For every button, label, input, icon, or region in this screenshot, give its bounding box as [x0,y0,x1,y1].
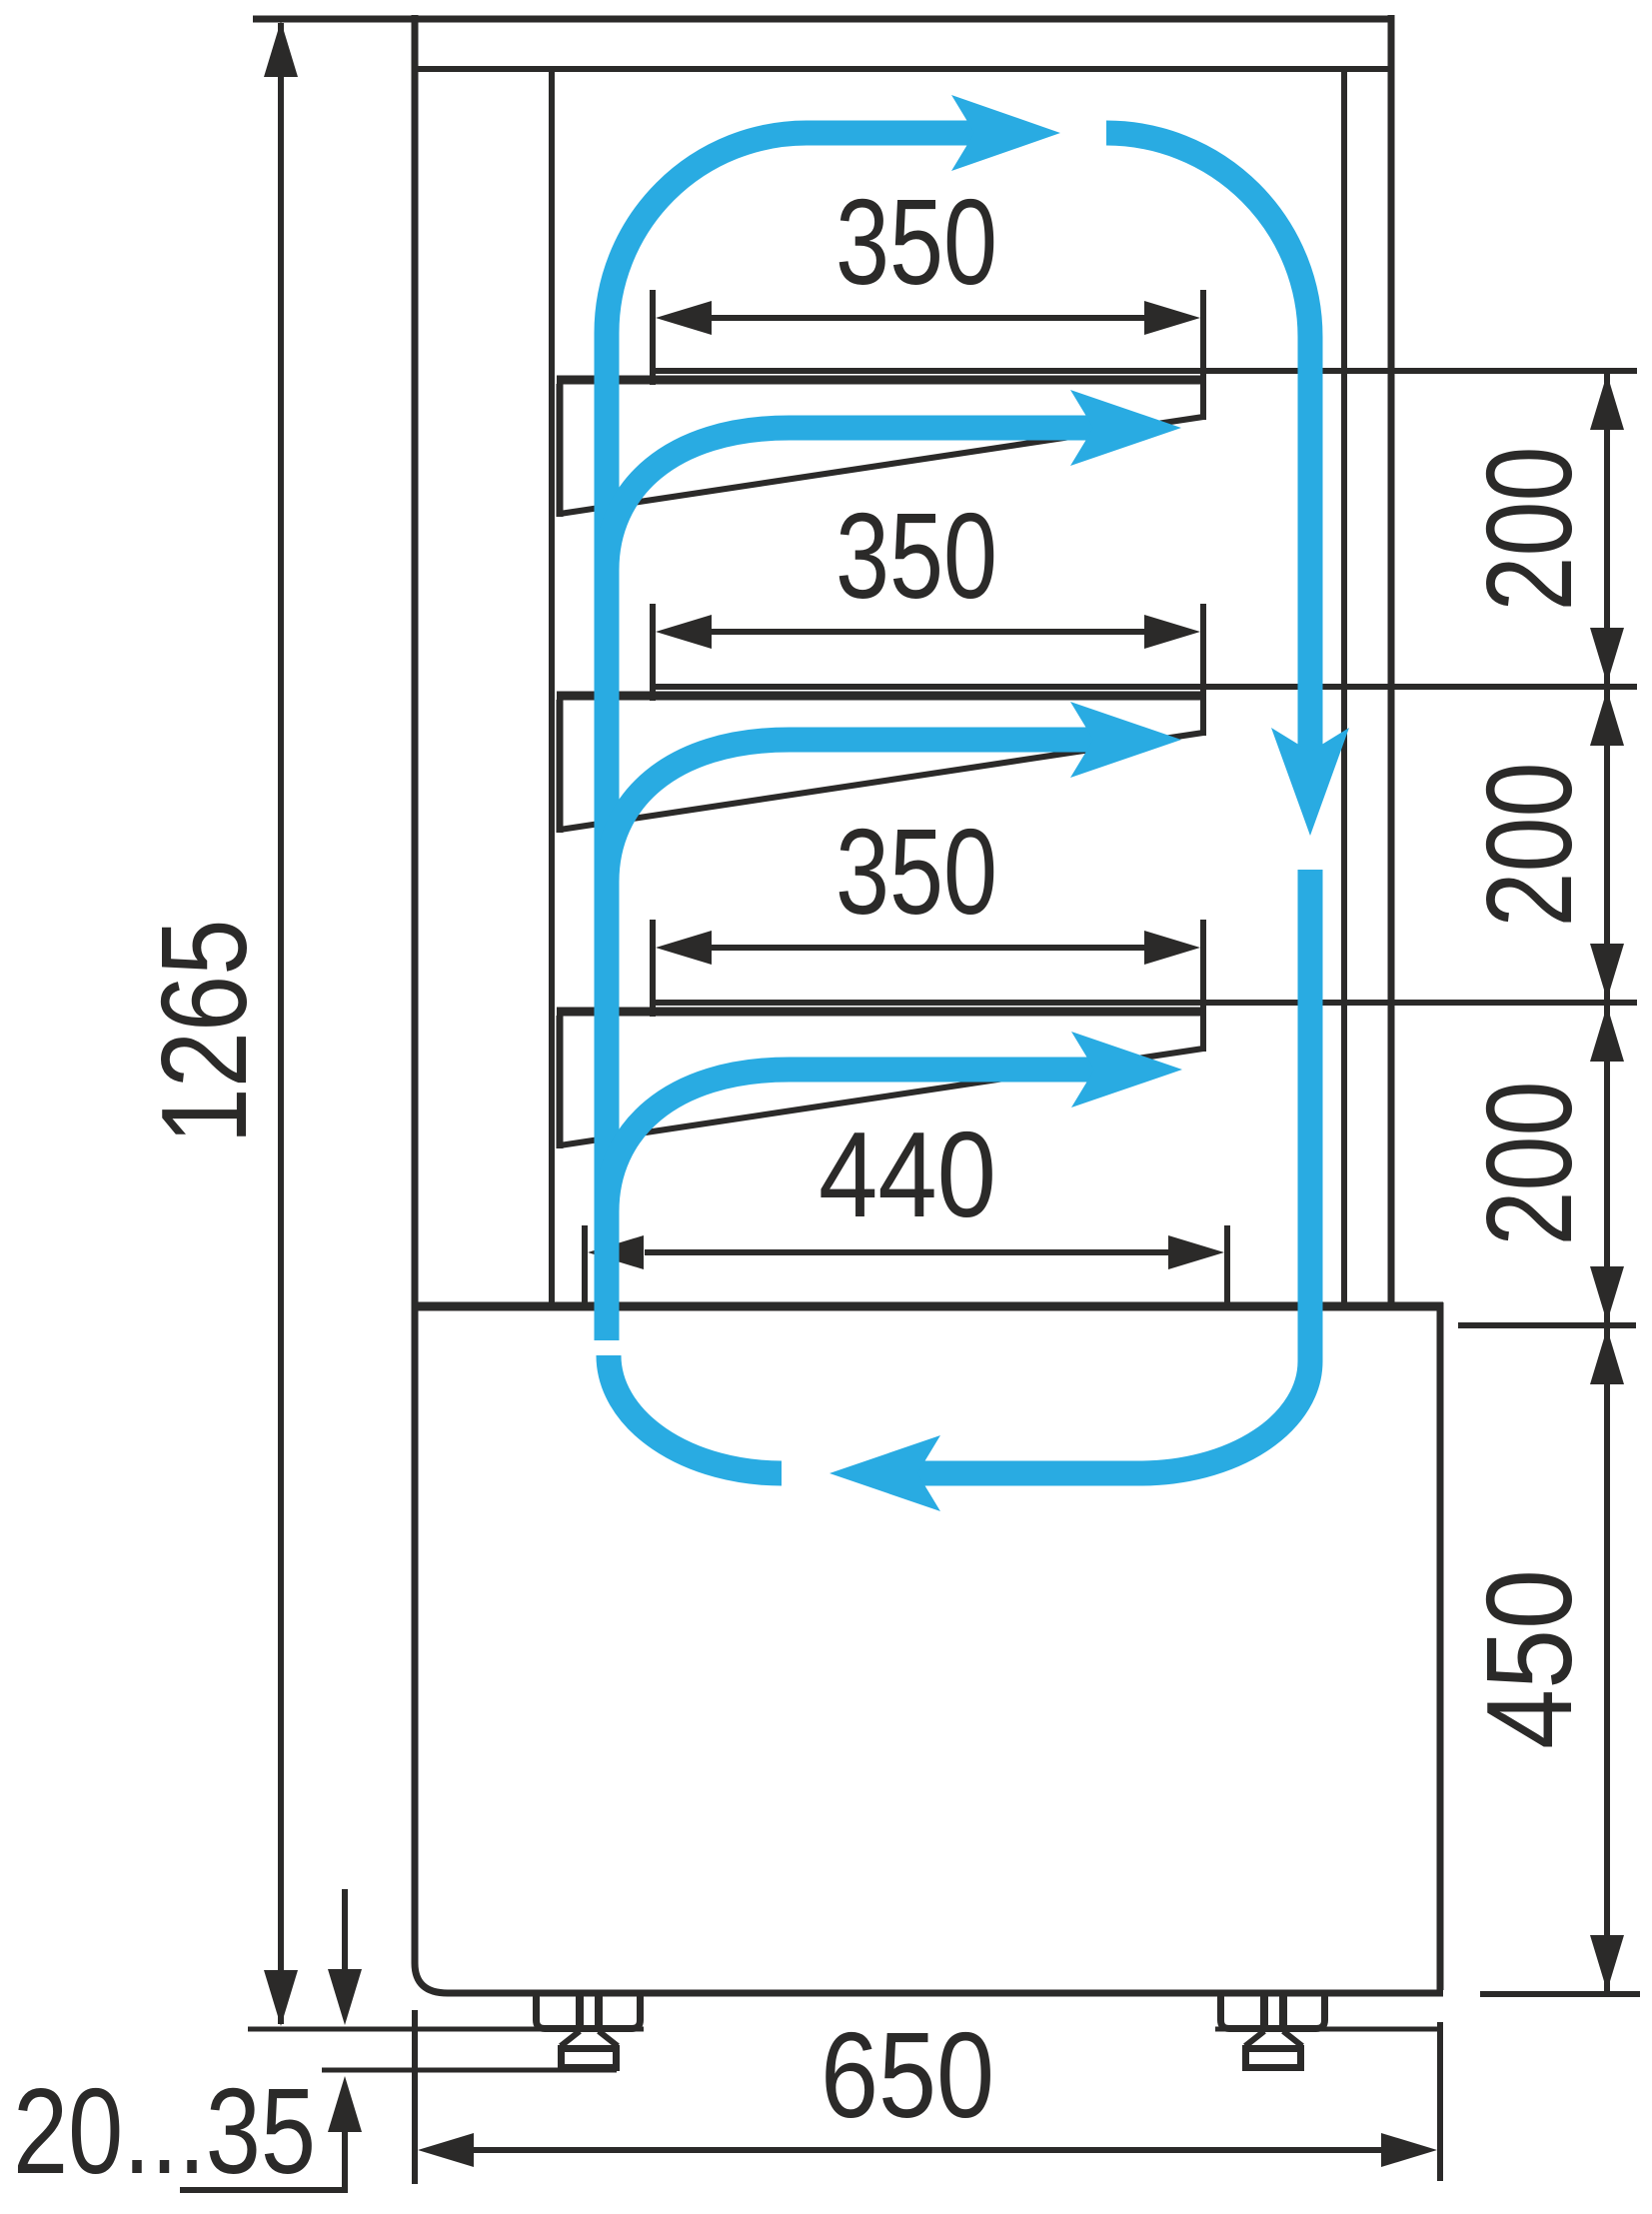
svg-text:450: 450 [1461,1569,1597,1749]
svg-text:200: 200 [1461,447,1597,612]
svg-text:200: 200 [1461,763,1597,928]
svg-text:20...35: 20...35 [13,2063,316,2199]
svg-text:350: 350 [835,488,997,624]
svg-text:650: 650 [821,2007,994,2143]
svg-text:440: 440 [819,1107,996,1242]
svg-text:200: 200 [1461,1082,1597,1246]
svg-text:350: 350 [835,804,997,940]
svg-text:1265: 1265 [136,920,272,1144]
svg-text:350: 350 [835,174,997,310]
